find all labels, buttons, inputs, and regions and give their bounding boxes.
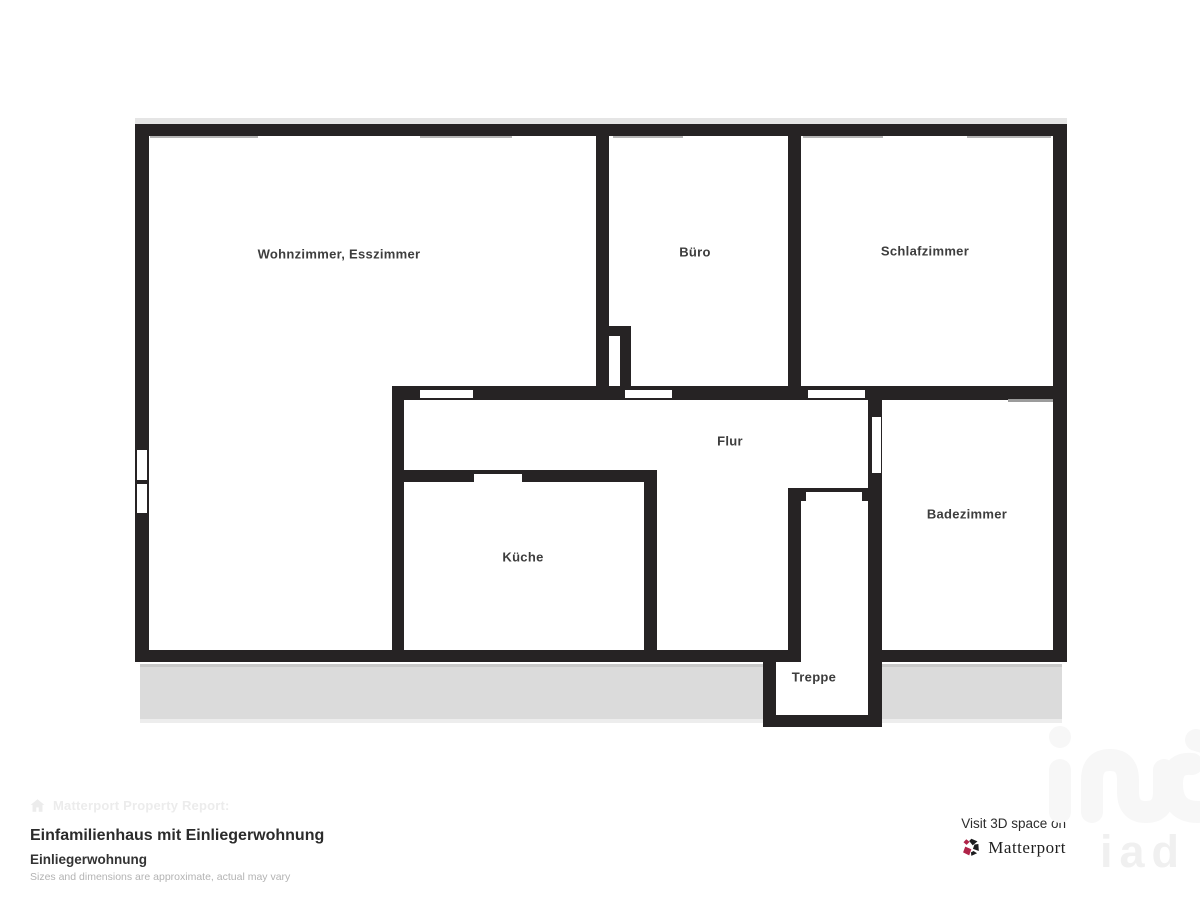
room-label-wohnzimmer-esszimmer: Wohnzimmer, Esszimmer (258, 247, 421, 262)
terrace-edge-bottom (140, 719, 1062, 723)
room-label-buero: Büro (679, 245, 711, 260)
terrace-strip (140, 667, 1062, 719)
wall-niche-cap (596, 326, 631, 336)
matterport-logo-icon (960, 837, 981, 858)
iad-logo-text: iad (1100, 826, 1186, 878)
door-wohnzimmer (420, 390, 473, 398)
door-kueche (474, 474, 522, 482)
wall-treppe-left (788, 488, 801, 662)
wall-flur-left (392, 398, 404, 652)
report-label: Matterport Property Report: (53, 798, 230, 813)
report-info: Matterport Property Report: Einfamilienh… (30, 797, 324, 883)
door-badezimmer (872, 417, 881, 473)
report-title: Einfamilienhaus mit Einliegerwohnung (30, 827, 324, 845)
wall-top (135, 124, 1067, 136)
room-label-schlafzimmer: Schlafzimmer (881, 244, 969, 259)
window-top-5 (967, 136, 1051, 138)
door-schlafzimmer (808, 390, 865, 398)
room-label-treppe: Treppe (792, 670, 836, 685)
wall-wohnzimmer-buero (596, 136, 609, 388)
report-disclaimer: Sizes and dimensions are approximate, ac… (30, 871, 324, 883)
window-top-1 (150, 136, 258, 138)
room-label-kueche: Küche (502, 550, 543, 565)
wall-bottom-left (135, 650, 800, 662)
floor-plan: Wohnzimmer, EsszimmerBüroSchlafzimmerFlu… (0, 0, 1200, 900)
wall-treppe-bottom (763, 715, 882, 727)
matterport-wordmark: Matterport (988, 838, 1066, 858)
door-buero (625, 390, 672, 398)
home-icon (30, 798, 45, 813)
room-label-flur: Flur (717, 434, 743, 449)
window-badezimmer-top (1008, 399, 1053, 402)
wall-niche-prong (620, 336, 631, 388)
report-subtitle: Einliegerwohnung (30, 852, 324, 867)
window-left-upper (137, 450, 147, 480)
wall-buero-schlafzimmer (788, 136, 801, 400)
wall-kueche-top (392, 470, 657, 482)
window-left-lower (137, 484, 147, 513)
window-top-2 (420, 136, 512, 138)
door-treppe (806, 492, 862, 501)
wall-flur-top (392, 386, 1067, 400)
window-top-4 (803, 136, 883, 138)
room-label-badezimmer: Badezimmer (927, 507, 1007, 522)
window-top-3 (613, 136, 683, 138)
report-header: Matterport Property Report: (30, 797, 324, 814)
matterport-link[interactable]: Matterport (960, 837, 1066, 858)
iad-logo-mark (1046, 726, 1200, 826)
wall-bottom-right (868, 650, 1067, 662)
wall-kueche-right (644, 470, 657, 652)
wall-left (135, 124, 149, 662)
